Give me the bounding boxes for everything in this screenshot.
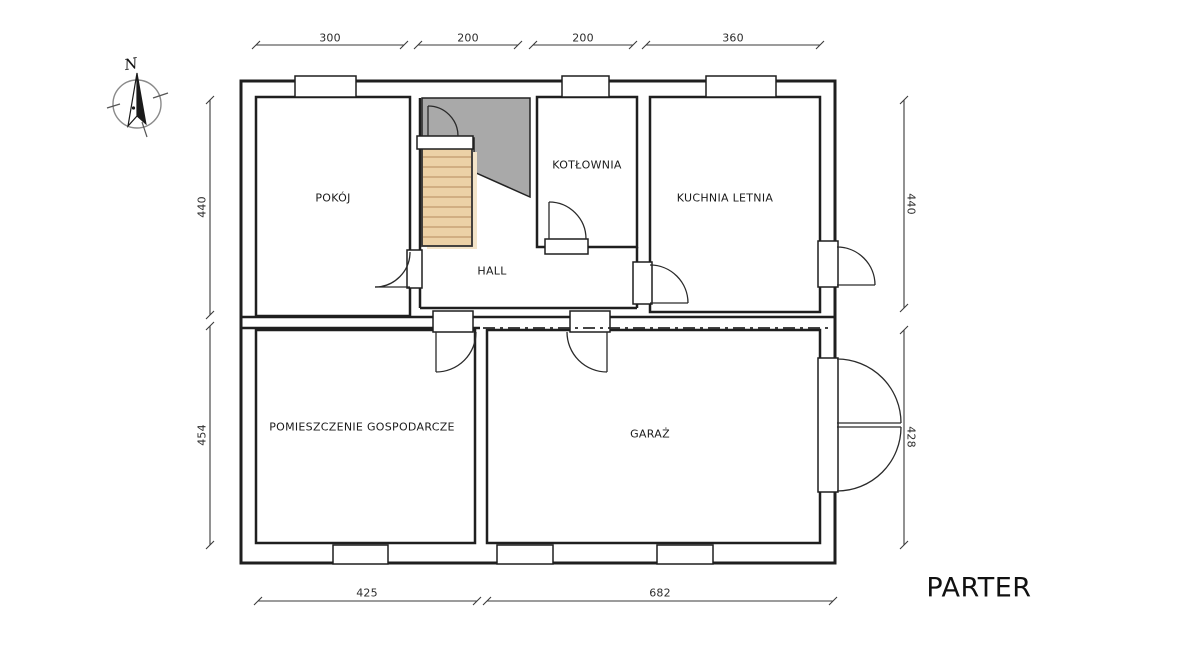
plan-title: PARTER: [926, 573, 1031, 604]
room-outline-kuchnia-letnia: [650, 97, 820, 312]
window-top-kotlownia: [562, 76, 609, 97]
room-label-kotlownia: KOTŁOWNIA: [552, 160, 621, 171]
room-outlines: [256, 97, 820, 543]
compass-rose-icon: [107, 73, 168, 137]
room-outline-pokoj: [256, 97, 410, 316]
room-label-kuchnia-letnia: KUCHNIA LETNIA: [677, 193, 773, 204]
dim-bottom-682: 682: [649, 588, 671, 599]
dim-top-200a: 200: [457, 33, 479, 44]
dim-bottom-425: 425: [356, 588, 378, 599]
door-frame-garaz-gate: [818, 358, 838, 492]
dimension-lines: [206, 41, 908, 605]
window-bottom-garaz-2: [657, 545, 713, 564]
stairs: [422, 147, 477, 249]
room-label-garaz: GARAŻ: [630, 429, 670, 440]
door-frame-kuchnia-hall: [633, 262, 652, 304]
door-frame-kuchnia-exterior: [818, 241, 838, 287]
floor-plan-canvas: N POKÓJ KOTŁOWNIA KUCHNIA LETNIA HALL PO…: [0, 0, 1200, 668]
door-frame-pomieszczenie: [433, 311, 473, 332]
stair-landing: [417, 136, 473, 149]
dim-right-440: 440: [906, 193, 917, 215]
window-bottom-pomieszczenie: [333, 545, 388, 564]
window-bottom-garaz-1: [497, 545, 553, 564]
window-top-kuchnia: [706, 76, 776, 97]
dim-left-454: 454: [197, 424, 208, 446]
dim-left-440: 440: [197, 196, 208, 218]
room-outline-pomieszczenie: [256, 330, 475, 543]
dim-right-428: 428: [906, 426, 917, 448]
windows: [295, 76, 776, 564]
window-top-pokoj: [295, 76, 356, 97]
dim-top-360: 360: [722, 33, 744, 44]
room-label-pomieszczenie-gospodarcze: POMIESZCZENIE GOSPODARCZE: [269, 422, 455, 433]
room-outline-kotlownia: [537, 97, 637, 247]
floor-plan-drawing: [0, 0, 1200, 668]
dim-top-300: 300: [319, 33, 341, 44]
door-frame-kotlownia: [545, 239, 588, 254]
room-label-pokoj: POKÓJ: [315, 193, 350, 204]
room-label-hall: HALL: [477, 266, 506, 277]
dim-top-200b: 200: [572, 33, 594, 44]
